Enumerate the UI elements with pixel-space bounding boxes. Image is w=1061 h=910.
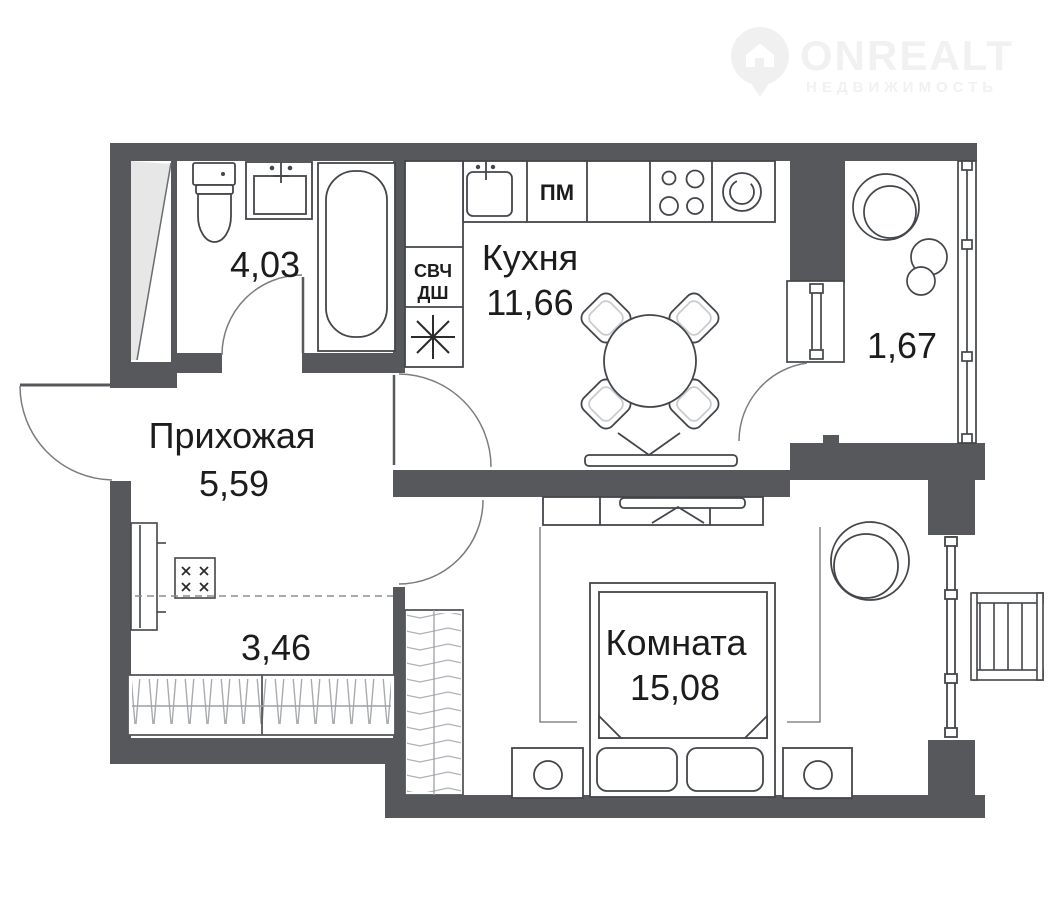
pillow-icon bbox=[597, 748, 677, 791]
dining-set bbox=[578, 290, 723, 433]
nightstand-icon bbox=[783, 748, 852, 798]
hallway-name-label: Прихожая bbox=[149, 415, 316, 456]
wall-room-bottom bbox=[385, 795, 985, 818]
oven-label: ДШ bbox=[418, 283, 449, 303]
electric-panel-icon bbox=[175, 558, 215, 598]
wall-top bbox=[110, 143, 977, 161]
watermark-brand: ONREALT bbox=[800, 32, 1014, 79]
wall-under-balcony bbox=[790, 443, 985, 480]
room-area-label: 15,08 bbox=[630, 667, 720, 708]
balcony-door-icon bbox=[787, 281, 844, 362]
kitchen-door bbox=[394, 374, 491, 467]
toilet-icon bbox=[193, 163, 235, 242]
bathroom-sink-icon bbox=[246, 162, 312, 219]
balcony-stool-icon bbox=[907, 267, 935, 295]
watermark-tagline: НЕДВИЖИМОСТЬ bbox=[806, 79, 998, 96]
room-window-icon bbox=[928, 535, 975, 740]
room-door-arc bbox=[399, 500, 483, 584]
wall-right-below-window bbox=[928, 740, 975, 798]
room-name-label: Комната bbox=[606, 622, 748, 663]
wall-kitchen-room bbox=[393, 470, 790, 497]
washer-icon bbox=[723, 173, 761, 211]
balcony-door-arc bbox=[739, 363, 807, 441]
fridge-icon bbox=[411, 315, 455, 359]
nightstand-icon bbox=[512, 748, 583, 798]
closet-icon bbox=[128, 675, 395, 735]
wall-shaft-bottom bbox=[110, 362, 177, 388]
onrealt-pin-icon bbox=[731, 27, 789, 97]
wall-bath-bottom-right bbox=[302, 353, 405, 373]
dining-table-icon bbox=[604, 315, 696, 407]
floor-plan: ONREALT НЕДВИЖИМОСТЬ bbox=[0, 0, 1061, 910]
onrealt-watermark: ONREALT НЕДВИЖИМОСТЬ bbox=[731, 27, 1014, 97]
kitchen-name-label: Кухня bbox=[482, 237, 578, 278]
pillow-icon bbox=[687, 748, 763, 791]
ac-bracket-icon bbox=[971, 593, 1043, 680]
wardrobe-icon bbox=[405, 610, 463, 795]
bathtub-icon bbox=[318, 163, 395, 351]
radiator-icon bbox=[131, 523, 166, 630]
wall-shaft-right bbox=[171, 161, 177, 362]
microwave-label: СВЧ bbox=[414, 261, 452, 281]
floor-plan-page: ONREALT НЕДВИЖИМОСТЬ bbox=[0, 0, 1061, 910]
kitchen-fixtures bbox=[405, 161, 775, 466]
balcony-area-label: 1,67 bbox=[867, 325, 937, 366]
balcony-window-icon bbox=[958, 161, 976, 443]
armchair-icon bbox=[831, 522, 909, 600]
wall-left-upper bbox=[110, 143, 131, 388]
dishwasher-label: ПМ bbox=[540, 180, 574, 205]
vent-shaft bbox=[131, 161, 171, 362]
bathroom-area-label: 4,03 bbox=[230, 244, 300, 285]
hallway-area-label: 5,59 bbox=[199, 463, 269, 504]
bathroom-door bbox=[222, 275, 303, 355]
wall-kitchen-balcony bbox=[790, 143, 845, 283]
entrance-door bbox=[20, 385, 112, 480]
kitchen-area-label: 11,66 bbox=[486, 282, 573, 323]
storage-area-label: 3,46 bbox=[241, 627, 311, 668]
kitchen-tv-icon bbox=[585, 433, 737, 466]
wall-storage-bottom bbox=[110, 738, 398, 764]
wall-notch bbox=[823, 435, 839, 444]
